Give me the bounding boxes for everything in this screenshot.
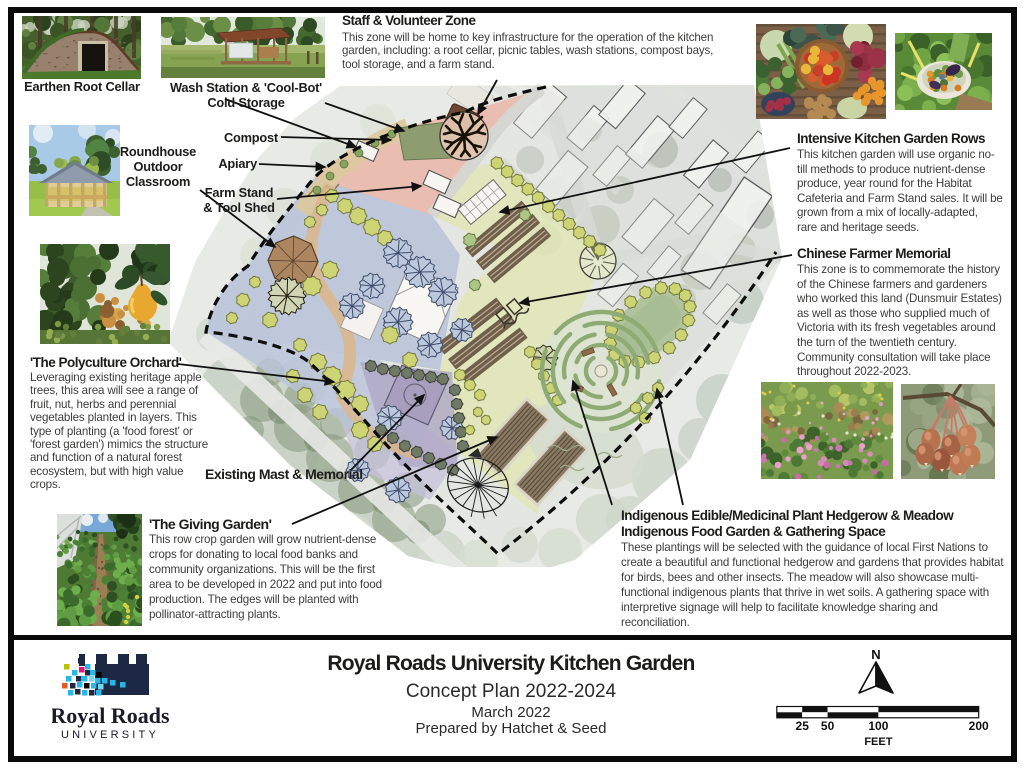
svg-text:FEET: FEET <box>864 736 892 748</box>
